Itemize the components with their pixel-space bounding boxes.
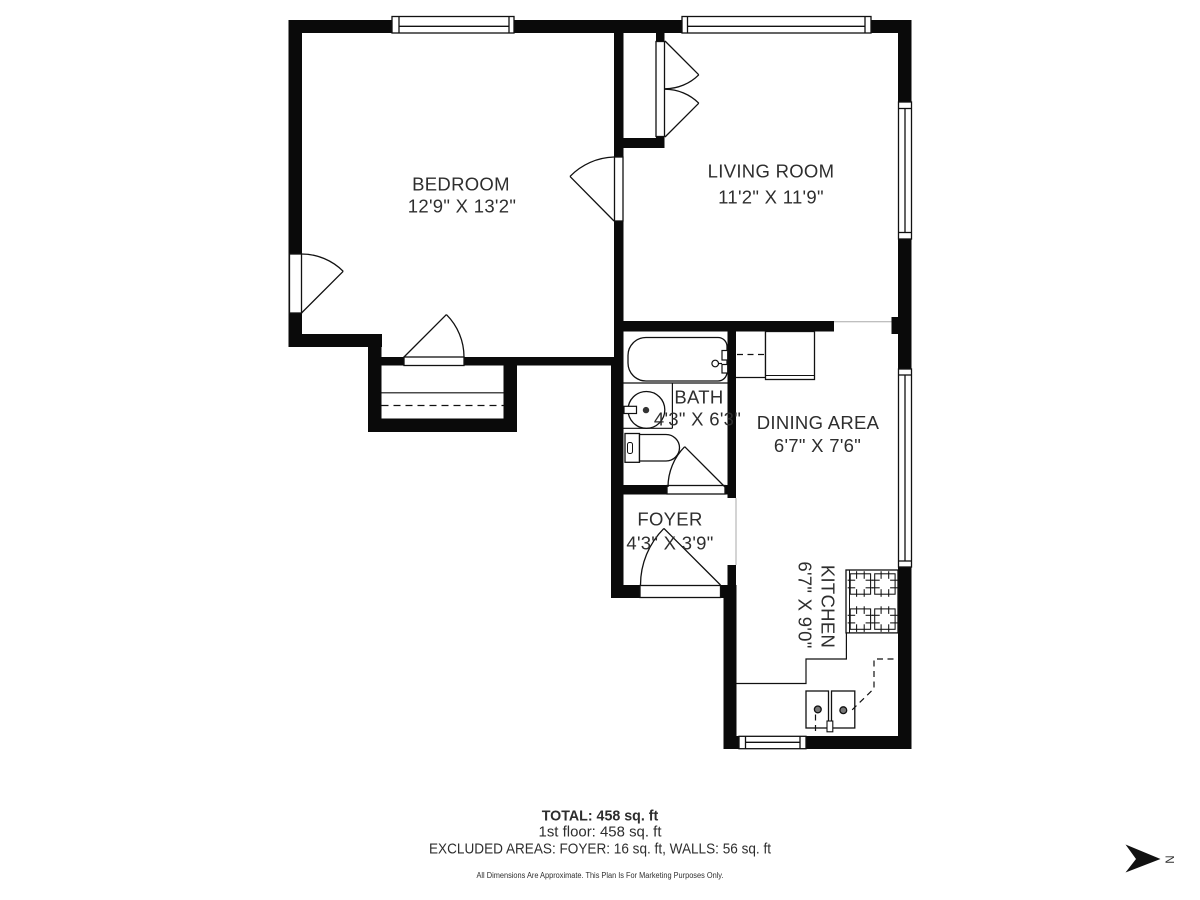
svg-text:EXCLUDED AREAS: FOYER: 16 sq.: EXCLUDED AREAS: FOYER: 16 sq. ft, WALLS:… xyxy=(429,841,772,858)
svg-text:6'7" X 9'0": 6'7" X 9'0" xyxy=(795,561,816,648)
svg-text:DINING AREA: DINING AREA xyxy=(757,412,880,433)
svg-text:All Dimensions Are Approximate: All Dimensions Are Approximate. This Pla… xyxy=(477,871,724,880)
svg-text:4'3" X 3'9": 4'3" X 3'9" xyxy=(626,533,713,554)
svg-text:BATH: BATH xyxy=(674,387,723,408)
svg-text:12'9" X 13'2": 12'9" X 13'2" xyxy=(408,196,516,217)
svg-text:11'2" X 11'9": 11'2" X 11'9" xyxy=(718,187,824,208)
svg-text:LIVING ROOM: LIVING ROOM xyxy=(708,161,835,182)
svg-text:KITCHEN: KITCHEN xyxy=(818,565,839,648)
svg-text:6'7" X 7'6": 6'7" X 7'6" xyxy=(774,435,861,456)
svg-text:N: N xyxy=(1163,855,1175,863)
svg-text:1st floor: 458 sq. ft: 1st floor: 458 sq. ft xyxy=(539,824,663,841)
svg-text:4'3" X 6'3": 4'3" X 6'3" xyxy=(654,409,741,430)
svg-text:FOYER: FOYER xyxy=(637,509,702,530)
svg-text:BEDROOM: BEDROOM xyxy=(412,174,510,195)
svg-text:TOTAL: 458 sq. ft: TOTAL: 458 sq. ft xyxy=(542,808,659,825)
